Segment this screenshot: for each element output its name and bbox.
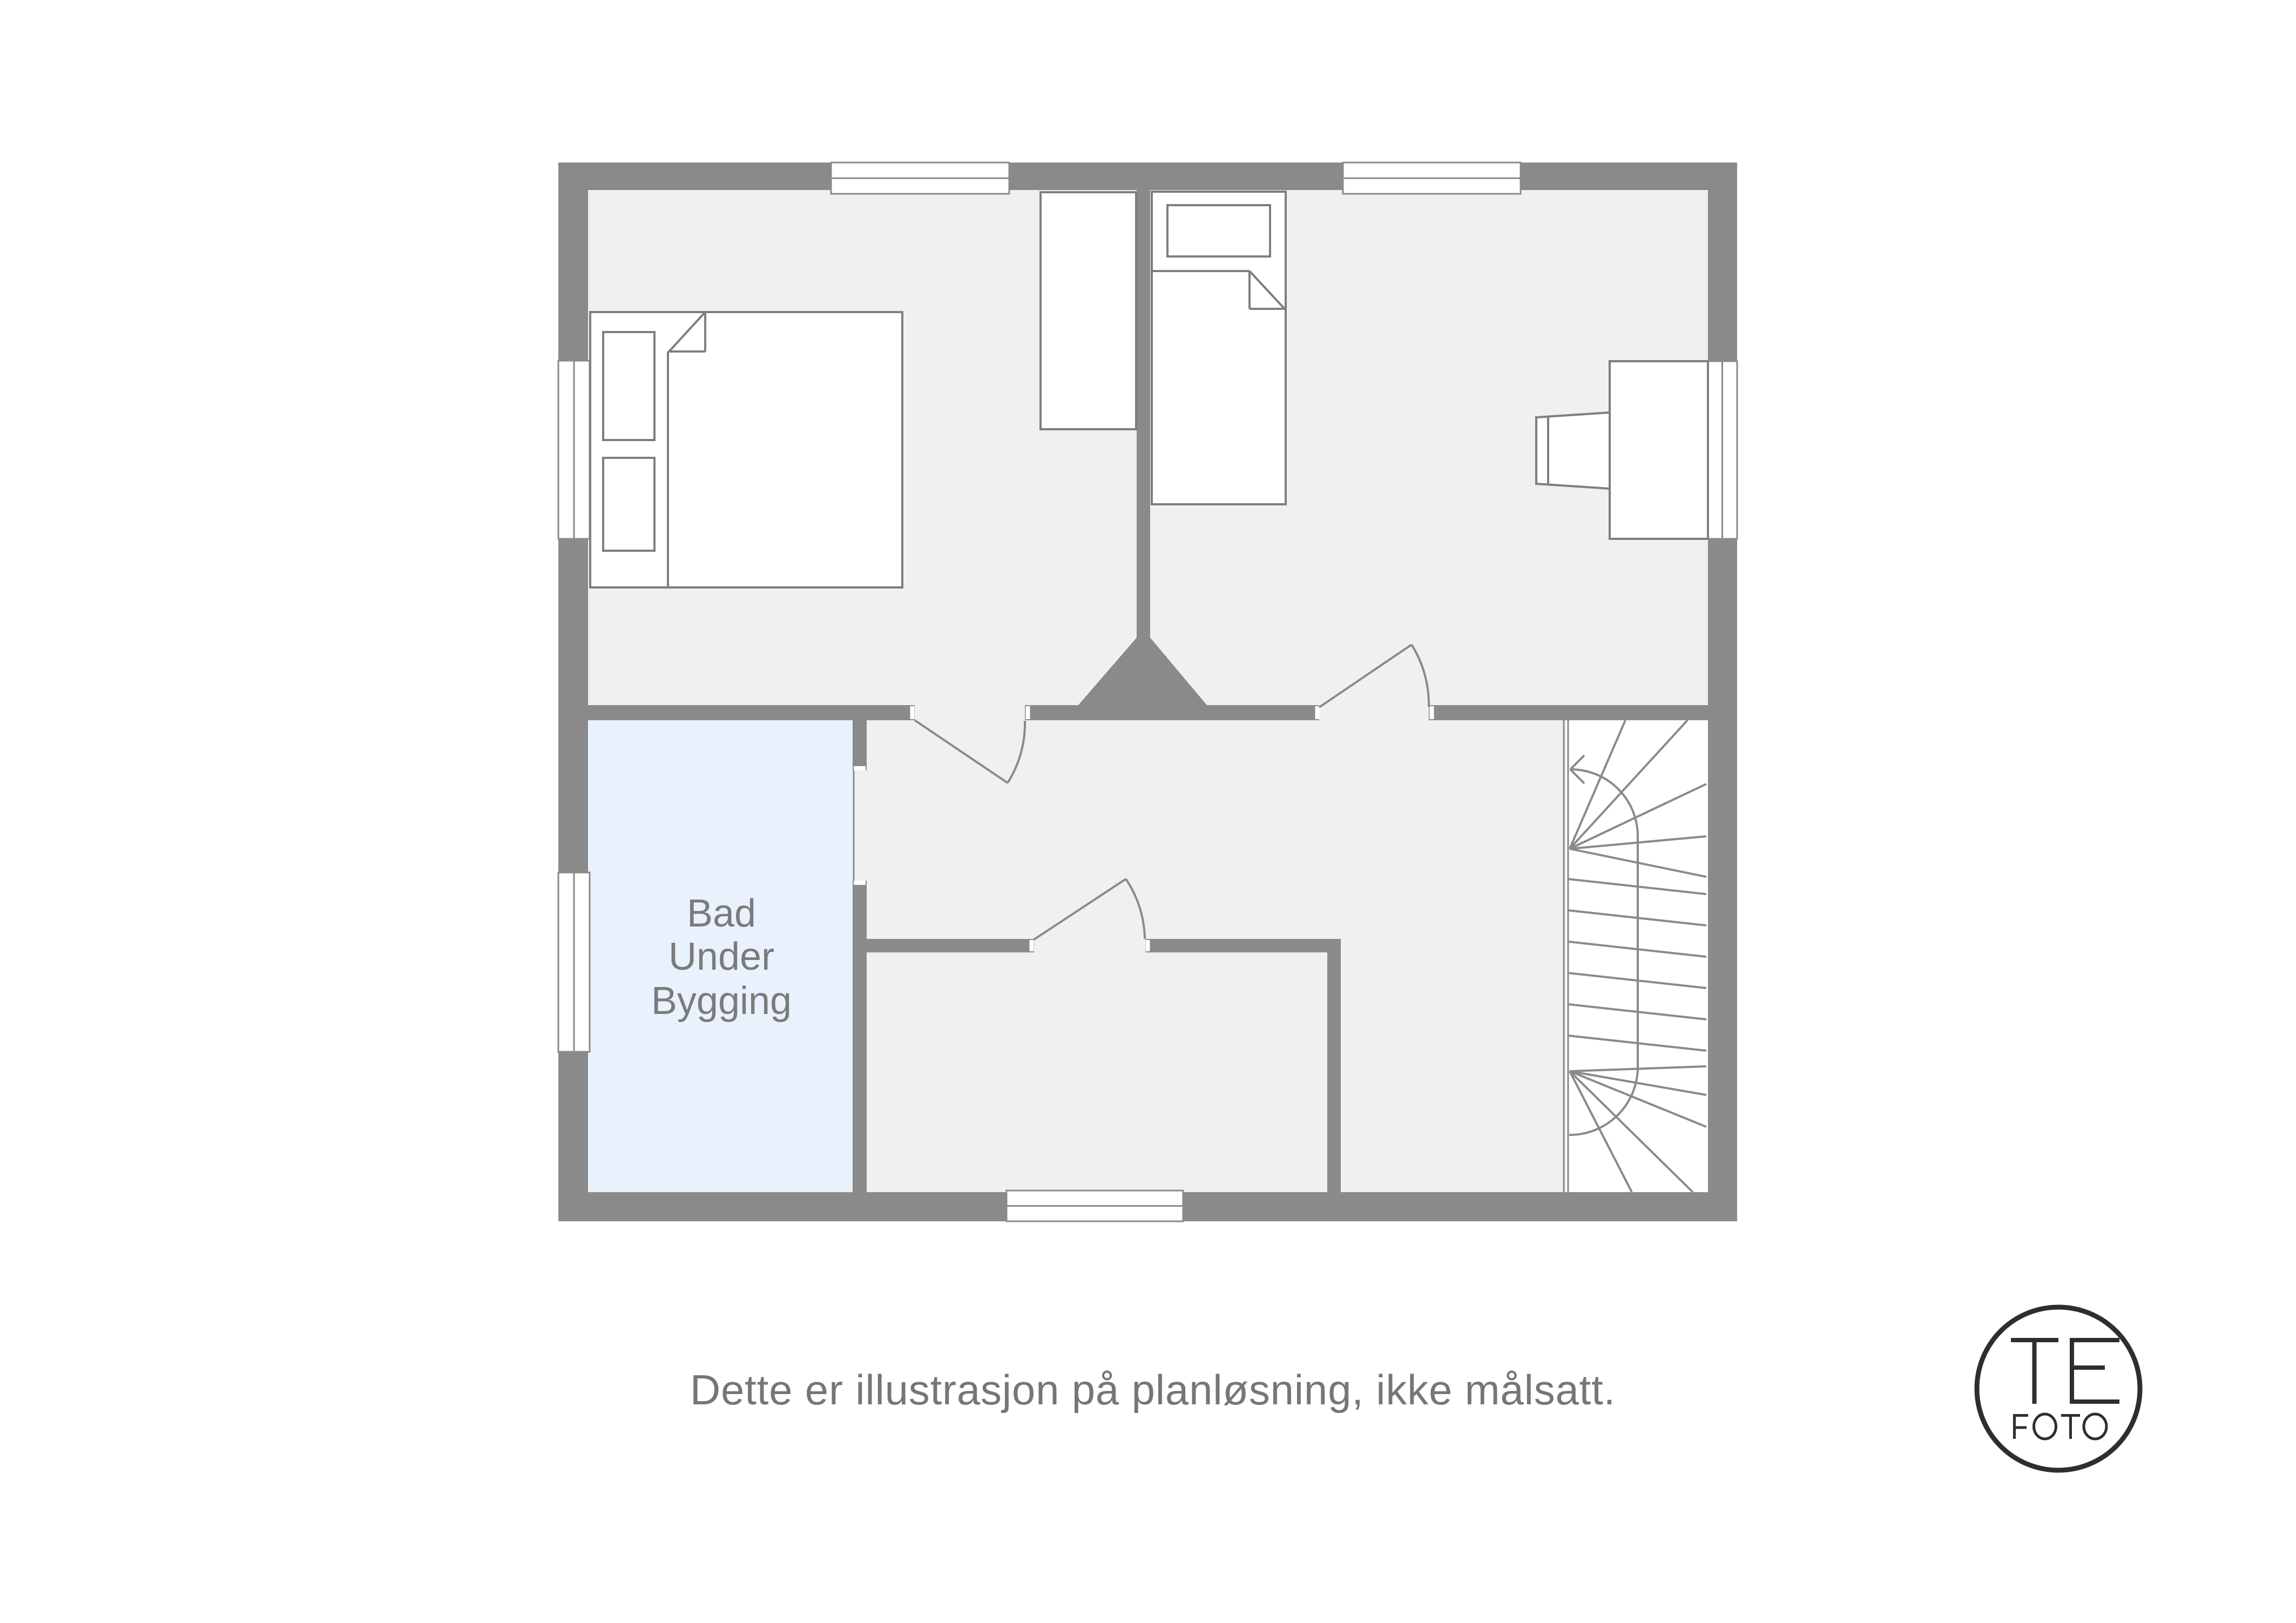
svg-text:Bad: Bad <box>687 892 756 935</box>
svg-text:Dette er illustrasjon på planl: Dette er illustrasjon på planløsning, ik… <box>690 1366 1616 1414</box>
svg-text:Under: Under <box>668 935 774 978</box>
svg-text:Bygging: Bygging <box>651 979 792 1023</box>
